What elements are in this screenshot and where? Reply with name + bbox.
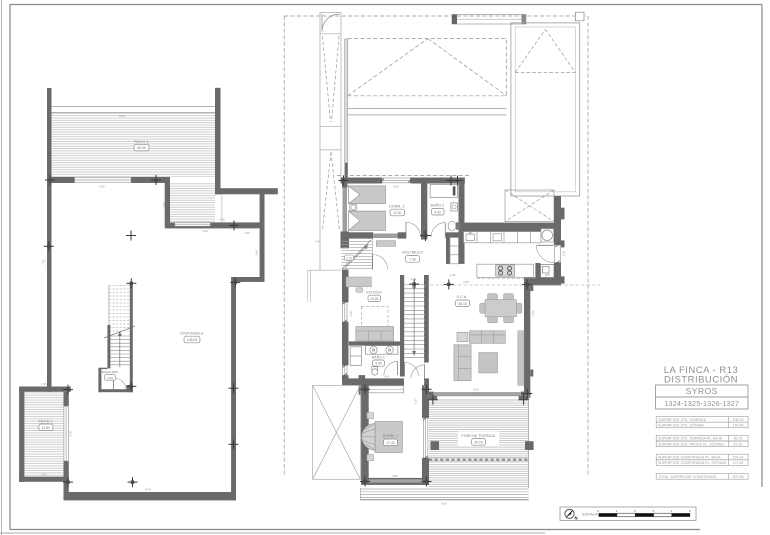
svg-text:4.06: 4.06 bbox=[393, 184, 399, 188]
svg-text:0.90: 0.90 bbox=[219, 218, 225, 222]
svg-text:SUPERFICIE CONSTRUIDA PL. SÓTA: SUPERFICIE CONSTRUIDA PL. SÓTANO bbox=[658, 460, 727, 465]
svg-text:1.00: 1.00 bbox=[411, 277, 417, 281]
svg-text:171.82: 171.82 bbox=[733, 461, 744, 465]
svg-text:4.00: 4.00 bbox=[434, 210, 441, 214]
svg-text:10.25: 10.25 bbox=[370, 297, 379, 301]
svg-text:DISTRIBUCIÓN: DISTRIBUCIÓN bbox=[664, 375, 738, 386]
svg-text:1.05: 1.05 bbox=[450, 273, 456, 277]
svg-text:5.40: 5.40 bbox=[375, 362, 382, 366]
svg-text:BAÑO 2: BAÑO 2 bbox=[431, 203, 445, 208]
svg-text:11.80: 11.80 bbox=[42, 426, 50, 430]
svg-text:3.55: 3.55 bbox=[392, 474, 398, 478]
svg-text:VESTÍBULO: VESTÍBULO bbox=[402, 251, 423, 255]
svg-text:SUPERFICIE ÚTIL TERRAZA PL. BA: SUPERFICIE ÚTIL TERRAZA PL. BAJA bbox=[658, 436, 723, 441]
svg-text:DORM. 1: DORM. 1 bbox=[383, 434, 399, 438]
svg-text:1.40: 1.40 bbox=[383, 375, 389, 379]
svg-text:PATIO 2: PATIO 2 bbox=[134, 140, 149, 144]
svg-text:1.46: 1.46 bbox=[255, 250, 259, 256]
svg-text:5.00: 5.00 bbox=[475, 392, 481, 396]
svg-text:4.44: 4.44 bbox=[315, 240, 321, 244]
svg-text:1.85: 1.85 bbox=[162, 202, 166, 208]
svg-text:34.00: 34.00 bbox=[474, 441, 483, 445]
svg-text:DISPONIBLE: DISPONIBLE bbox=[180, 331, 204, 335]
svg-text:S.C.A.: S.C.A. bbox=[457, 295, 468, 299]
svg-text:9.60: 9.60 bbox=[441, 501, 447, 505]
svg-text:108.25: 108.25 bbox=[733, 418, 744, 422]
svg-text:67.30: 67.30 bbox=[734, 442, 743, 446]
svg-text:2.50: 2.50 bbox=[531, 310, 535, 316]
svg-text:SUPERFICIE ÚTIL SÓTANO: SUPERFICIE ÚTIL SÓTANO bbox=[658, 423, 704, 428]
svg-text:SUPERFICIE ÚTIL PATIOS PL. SÓT: SUPERFICIE ÚTIL PATIOS PL. SÓTANO bbox=[658, 441, 724, 446]
svg-text:6.05: 6.05 bbox=[99, 185, 105, 189]
svg-text:2.93: 2.93 bbox=[463, 280, 469, 284]
svg-text:3.78: 3.78 bbox=[69, 431, 73, 437]
svg-text:1.63: 1.63 bbox=[562, 250, 566, 256]
svg-text:2.90: 2.90 bbox=[41, 473, 47, 477]
svg-text:ESCALERA: ESCALERA bbox=[102, 370, 118, 374]
svg-text:2.20: 2.20 bbox=[202, 229, 208, 233]
svg-text:56.75: 56.75 bbox=[734, 437, 743, 441]
svg-text:8.70: 8.70 bbox=[145, 488, 151, 492]
svg-text:2.45: 2.45 bbox=[41, 382, 47, 386]
svg-text:12.20: 12.20 bbox=[393, 211, 402, 215]
svg-text:0.75: 0.75 bbox=[346, 256, 352, 260]
svg-text:BAÑO 1: BAÑO 1 bbox=[372, 354, 385, 359]
svg-text:PATIO 1: PATIO 1 bbox=[39, 419, 54, 423]
svg-text:150.65: 150.65 bbox=[733, 424, 744, 428]
svg-text:1.25: 1.25 bbox=[244, 231, 250, 235]
svg-text:ACS: ACS bbox=[545, 274, 550, 277]
svg-text:1.20: 1.20 bbox=[414, 398, 418, 404]
svg-text:150.24: 150.24 bbox=[733, 456, 744, 460]
svg-text:PORCHE TERRAZA: PORCHE TERRAZA bbox=[461, 434, 496, 438]
svg-text:TOTAL SUPERFICIE CONSTRUIDA: TOTAL SUPERFICIE CONSTRUIDA bbox=[658, 475, 717, 479]
svg-text:SYROS: SYROS bbox=[686, 386, 718, 396]
svg-text:SUPERFICIE CONSTRUIDA PL. BAJA: SUPERFICIE CONSTRUIDA PL. BAJA bbox=[658, 456, 721, 460]
svg-text:7.35: 7.35 bbox=[42, 259, 46, 265]
svg-text:ESTUDIO: ESTUDIO bbox=[366, 291, 382, 295]
svg-text:8.05: 8.05 bbox=[119, 114, 125, 118]
svg-text:DORM. 2: DORM. 2 bbox=[389, 204, 405, 208]
svg-text:17.40: 17.40 bbox=[386, 441, 395, 445]
svg-text:ESCALA: ESCALA bbox=[583, 513, 598, 517]
svg-text:48.10: 48.10 bbox=[458, 302, 467, 306]
svg-text:N: N bbox=[575, 516, 578, 521]
svg-text:307.06: 307.06 bbox=[733, 475, 744, 479]
svg-text:4.60: 4.60 bbox=[107, 376, 113, 380]
svg-text:3.30: 3.30 bbox=[349, 311, 353, 317]
svg-text:1324-1325-1326-1327: 1324-1325-1326-1327 bbox=[664, 399, 739, 408]
svg-text:SUPERFICIE ÚTIL VIVIENDA: SUPERFICIE ÚTIL VIVIENDA bbox=[658, 417, 707, 422]
svg-text:7.40: 7.40 bbox=[409, 258, 416, 262]
svg-text:148.03: 148.03 bbox=[187, 338, 197, 342]
svg-text:56.30: 56.30 bbox=[137, 146, 146, 150]
